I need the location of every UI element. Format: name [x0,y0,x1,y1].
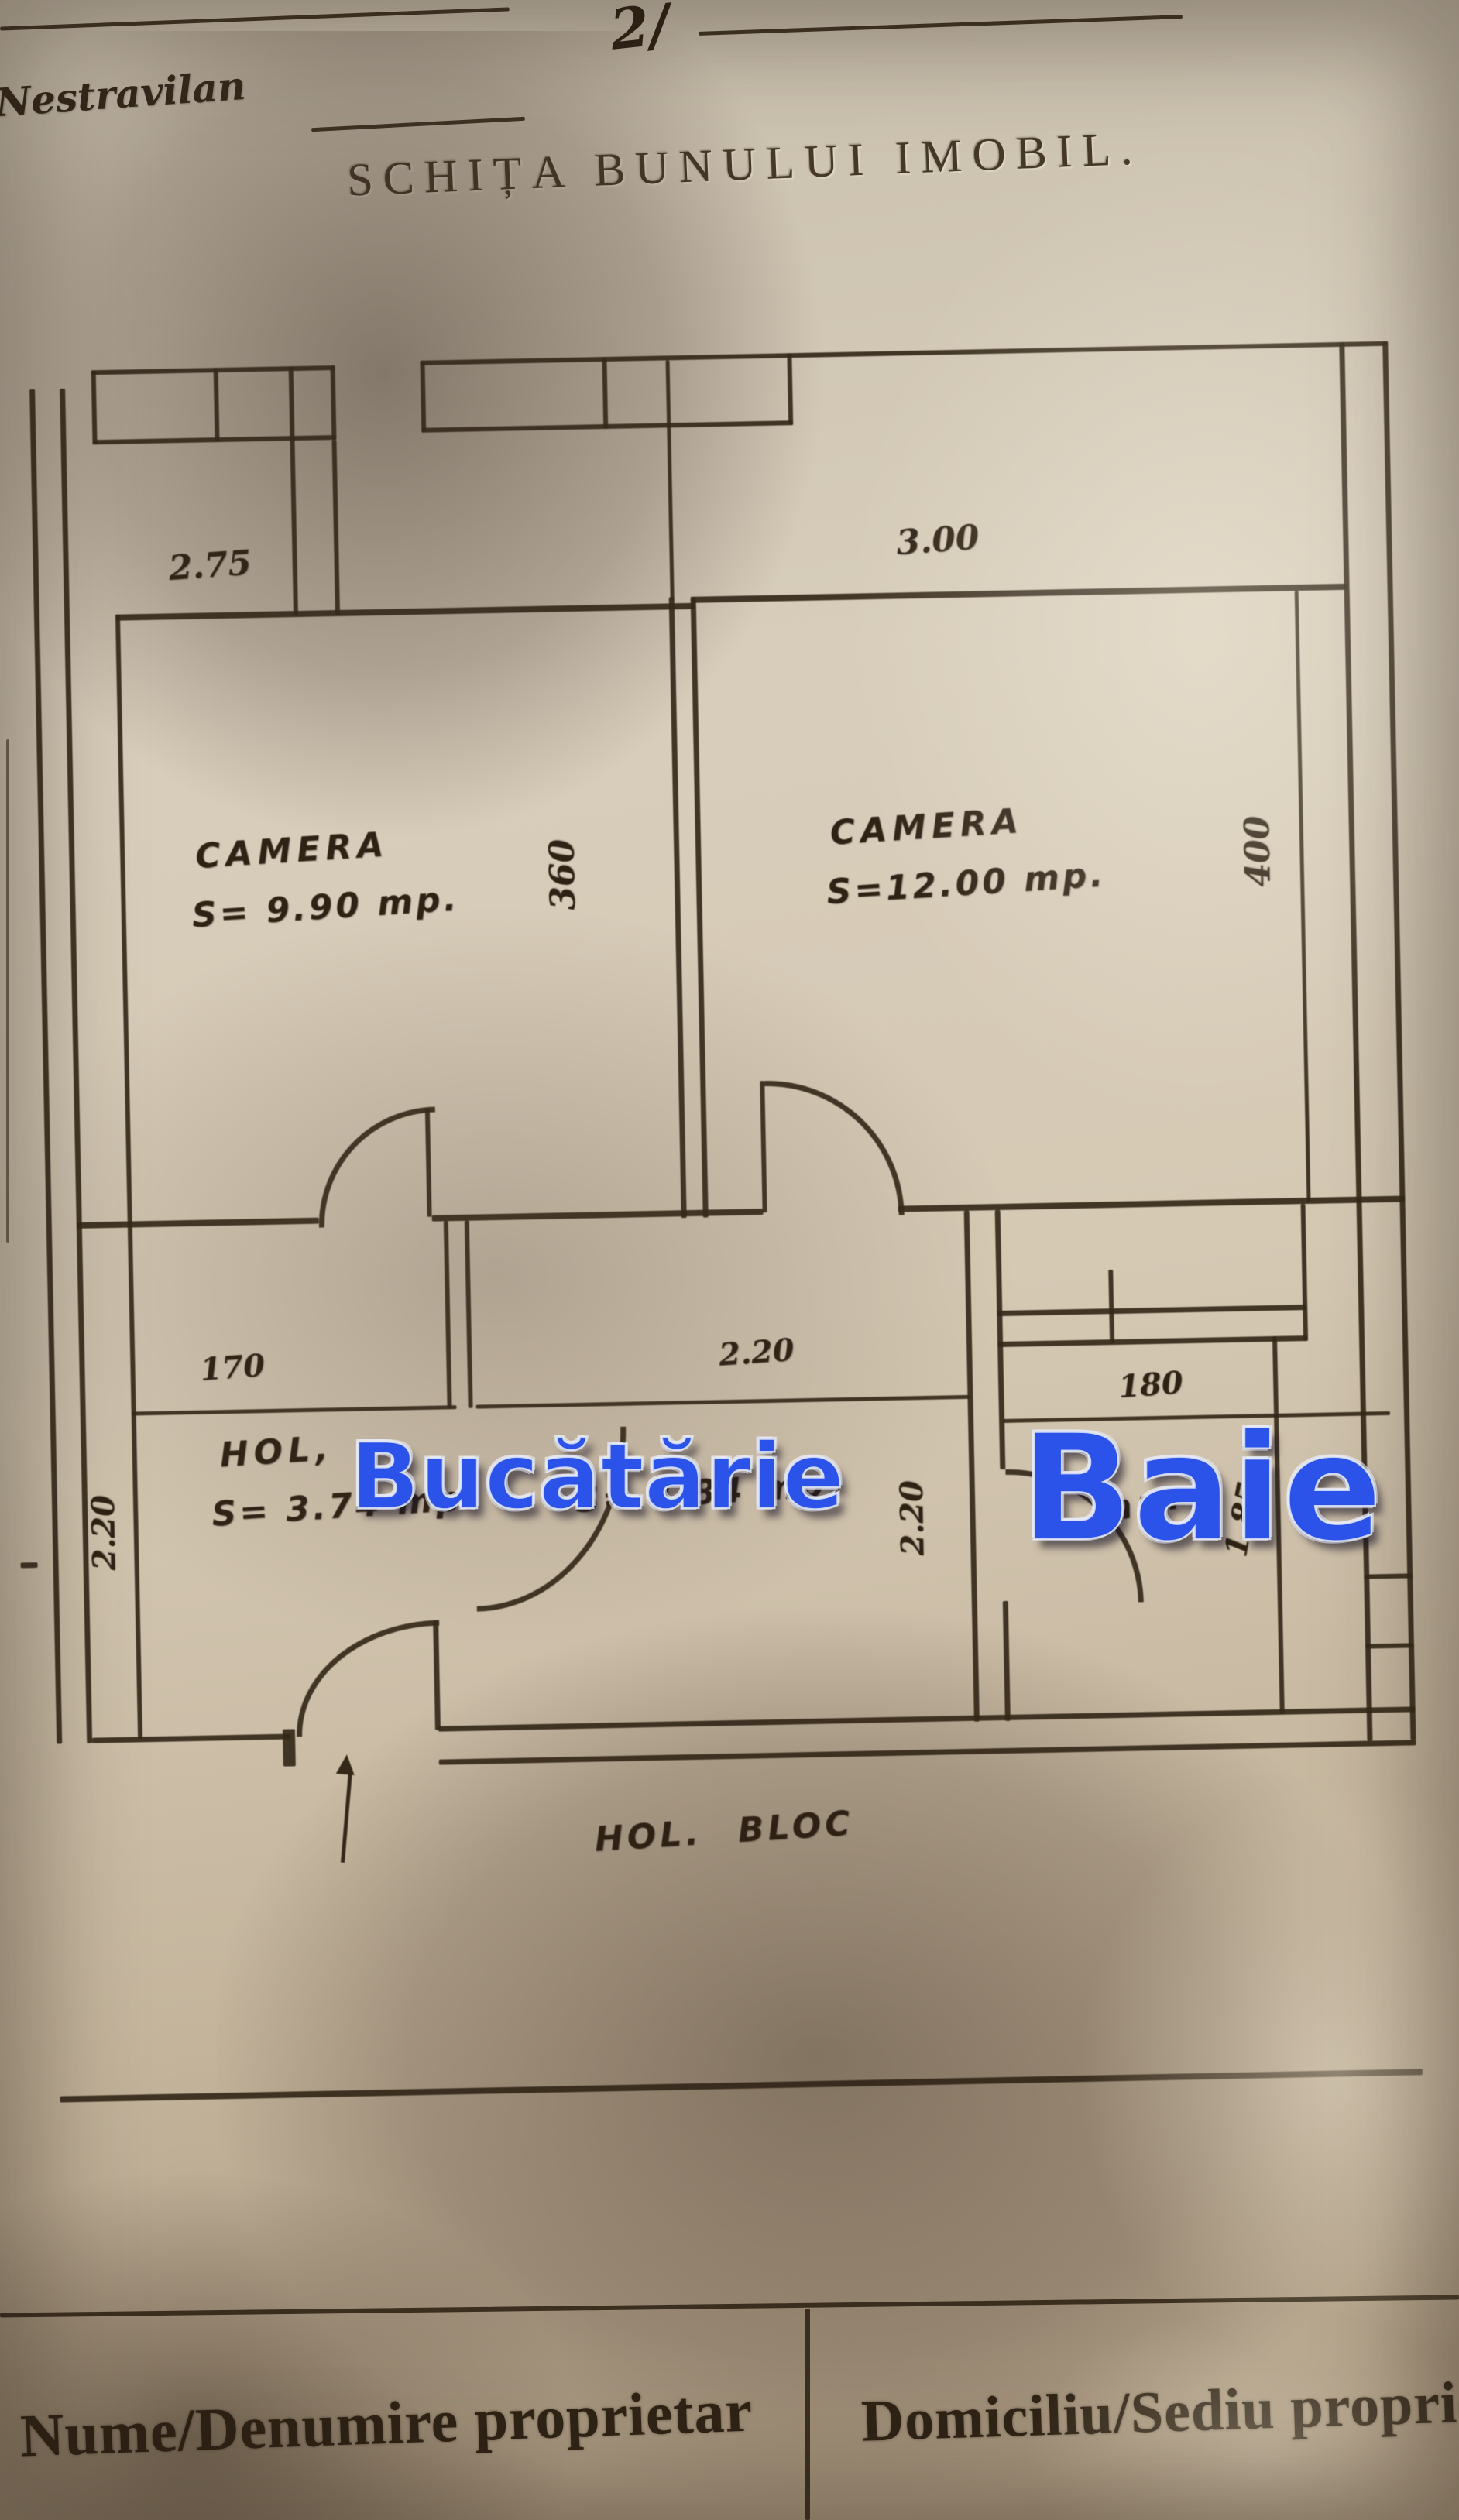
dim-bath-width: 180 [1117,1364,1185,1405]
wall-bath-stub [1108,1270,1114,1343]
door-arc-room-left [317,1107,438,1228]
window-tick [214,368,220,442]
window-tick-right-wall [1364,1573,1413,1579]
hol-name: HOL, [218,1428,335,1475]
handwritten-number: 2/ [607,0,673,63]
wall-hol-kitchen-b [465,1221,473,1408]
wall-bottom-right-a [438,1706,1416,1731]
floor-plan: 2.75 3.00 360 400 CAMERA S= 9.90 mp. CAM… [0,326,1459,2127]
footer-rule [0,2295,1459,2317]
address-label: Domiciliu/Sediu proprie [860,2368,1459,2455]
field-underline [311,117,525,132]
page-title: SCHIȚA BUNULUI IMOBIL. [346,122,1144,207]
door-arc-entrance [294,1620,441,1737]
wall-cross-a [77,1218,319,1229]
wall-bath-connector [1301,1204,1309,1341]
entrance-arrow [344,1757,369,1874]
dim-hol-depth: 2.20 [85,1495,123,1571]
wall-bath-top-b [997,1335,1307,1347]
room-right-name: CAMERA [829,801,1025,853]
kitchen-overlay-label: Bucătărie [350,1431,844,1522]
wall-kitchen-bath-b2 [1003,1601,1011,1721]
window-tick [91,370,98,444]
arrow-shaft [341,1768,352,1863]
wall-kitchen-bath-a [964,1211,980,1722]
door-arc-room-right [764,1078,905,1219]
wall-middle-a [669,597,687,1218]
dim-line-hol [132,1405,457,1415]
door-jamb-entrance [283,1729,296,1766]
wall-balcony-left-b [331,440,340,615]
wall-outer-left-a [29,389,62,1744]
arrow-head-icon [336,1754,356,1775]
wall-bottom-left [92,1734,290,1743]
document-photo: Nestravilan 2/ SCHIȚA BUNULUI IMOBIL. [0,0,1459,2520]
wall-balcony-left-a [289,366,298,615]
plan-frame-bottom [60,2069,1423,2102]
window-tick [602,357,608,429]
small-dash [21,1562,38,1568]
wall-outer-right-b [1382,341,1416,1740]
window-tick [420,361,426,433]
wall-cross-b [432,1209,764,1222]
window-tick [787,353,793,425]
dim-hol-width: 170 [199,1347,266,1388]
dim-room-left-width: 2.75 [167,543,253,588]
room-right-area: S=12.00 mp. [826,855,1107,912]
wall-room-left-top [115,603,695,621]
window-tick-right-wall [1365,1643,1414,1648]
top-rule-line [0,7,510,30]
room-left-area: S= 9.90 mp. [191,879,460,935]
dim-room-right-width: 3.00 [895,518,981,564]
window-tick [331,365,337,440]
wall-bottom-right-b [439,1740,1416,1764]
top-rule-line-right [699,15,1183,36]
wall-middle-b [691,597,709,1218]
dim-room-left-depth: 360 [542,838,583,910]
hol-bloc-label: HOL. BLOC [593,1804,855,1860]
wall-balcony-divider [666,360,675,600]
wall-bath-top-a [997,1305,1306,1316]
window-band-right-top [420,341,1388,365]
field-label-nestravilan: Nestravilan [0,63,247,125]
dim-kitchen-depth: 2.20 [894,1480,932,1556]
dim-line-room-right [1295,591,1311,1202]
dim-line-kitchen [476,1395,970,1409]
owner-label: Nume/Denumire proprietar [19,2376,754,2471]
footer-divider [805,2309,810,2520]
wall-hol-kitchen-a [444,1221,452,1408]
wall-kitchen-bath-b [995,1210,1006,1469]
bath-overlay-label: Baie [1021,1415,1382,1562]
dim-room-right-depth: 400 [1238,815,1279,887]
dim-kitchen-width: 2.20 [718,1332,796,1373]
wall-room-right-top [691,584,1347,603]
wall-cross-c [898,1195,1405,1212]
room-left-name: CAMERA [194,825,390,876]
